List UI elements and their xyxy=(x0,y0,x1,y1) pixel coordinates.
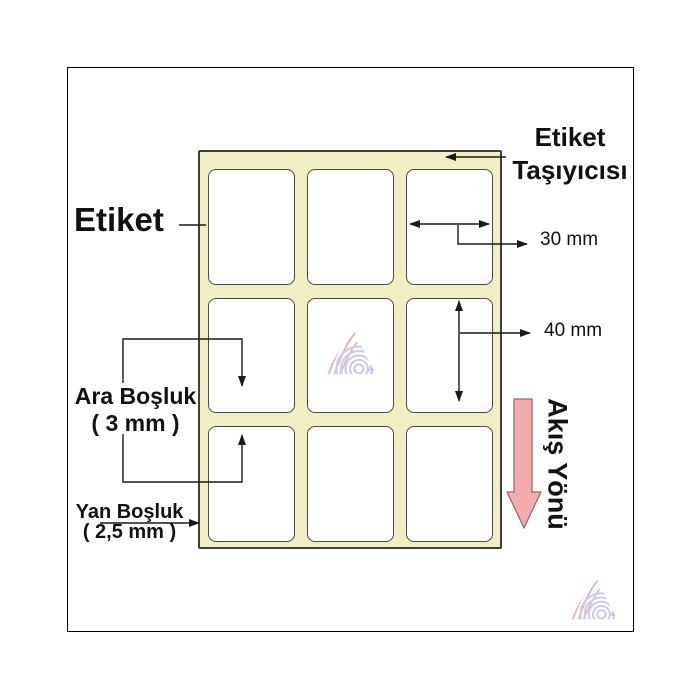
label-cell xyxy=(307,426,394,542)
label-callout-text: Etiket xyxy=(74,201,164,239)
gap-callout-text: Ara Boşluk ( 3 mm ) xyxy=(63,383,208,436)
side-margin-callout-line2: ( 2,5 mm ) xyxy=(57,522,202,542)
watermark-logo-icon xyxy=(567,574,619,621)
width-dimension-text: 30 mm xyxy=(540,229,598,251)
carrier-callout-text: Etiket Taşıyıcısı xyxy=(498,121,642,186)
height-dimension-text: 40 mm xyxy=(544,320,602,342)
label-cell xyxy=(307,169,394,285)
label-cell xyxy=(208,169,295,285)
label-cell xyxy=(208,298,295,414)
side-margin-callout-line1: Yan Boşluk xyxy=(57,502,202,522)
gap-callout-line1: Ara Boşluk xyxy=(63,383,208,410)
label-cell xyxy=(208,426,295,542)
diagram-page: Etiket Etiket Taşıyıcısı 30 mm 40 mm Ara… xyxy=(0,0,700,700)
label-cell xyxy=(406,426,493,542)
watermark-logo-icon xyxy=(322,326,378,376)
gap-callout-line2: ( 3 mm ) xyxy=(63,410,208,437)
flow-direction-text: Akış Yönü xyxy=(542,398,573,530)
carrier-callout-line2: Taşıyıcısı xyxy=(498,154,642,187)
label-cell xyxy=(406,169,493,285)
carrier-callout-line1: Etiket xyxy=(498,121,642,154)
side-margin-callout-text: Yan Boşluk ( 2,5 mm ) xyxy=(57,502,202,542)
label-cell xyxy=(406,298,493,414)
